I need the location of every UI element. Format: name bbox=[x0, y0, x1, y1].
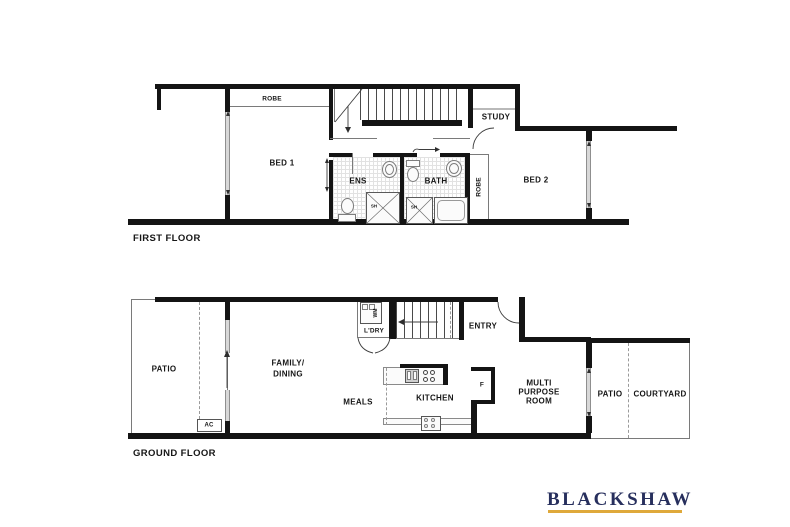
bath-label: BATH bbox=[425, 176, 448, 185]
courtyard-right-line bbox=[689, 343, 690, 439]
multi-label-line1: MULTI bbox=[526, 378, 551, 387]
robe1-line bbox=[230, 106, 329, 107]
bed1-window bbox=[225, 112, 230, 195]
stove-burner-2 bbox=[430, 370, 435, 375]
bath-toilet-bowl-icon bbox=[407, 167, 419, 182]
kitchen-bench-wall-top bbox=[400, 364, 448, 368]
ff-stair-arrowhead bbox=[345, 127, 351, 133]
entry-lower-wall bbox=[519, 337, 591, 342]
fridge-nook-right bbox=[491, 367, 495, 404]
family-slider-line bbox=[227, 353, 228, 390]
bath-shower-label: SH bbox=[411, 204, 417, 209]
robe1-label: ROBE bbox=[262, 95, 282, 102]
wm-label: WM bbox=[374, 309, 380, 318]
bath-slider-arrowhead bbox=[435, 147, 440, 152]
wm-detail-a bbox=[362, 304, 368, 310]
mpr-left-wall bbox=[471, 404, 477, 433]
study-step-wall bbox=[515, 84, 520, 131]
courtyard-label: COURTYARD bbox=[633, 389, 686, 398]
bath-block-wall-b bbox=[373, 153, 417, 157]
courtyard-bottom-line bbox=[591, 438, 690, 439]
robe2-right-line bbox=[488, 154, 489, 219]
robe2-top-line bbox=[470, 154, 488, 155]
stove-burner-4 bbox=[430, 377, 435, 382]
patio-wall-cap-bottom bbox=[225, 421, 230, 434]
blackshaw-logo: BLACKSHAW bbox=[547, 489, 693, 511]
family-window-top bbox=[225, 320, 230, 353]
patio2-label: PATIO bbox=[598, 389, 623, 398]
kitchen-sink-bowl-left bbox=[407, 371, 411, 380]
mpr-window-cap-bottom bbox=[586, 416, 592, 433]
entry-corner-wall bbox=[519, 297, 525, 342]
ac-label: AC bbox=[204, 423, 213, 430]
entry-door-arc bbox=[498, 302, 519, 323]
bath-toilet-tank-icon bbox=[406, 160, 420, 167]
appliance-dot-1 bbox=[424, 418, 428, 422]
meals-label: MEALS bbox=[343, 397, 373, 406]
ldry-bottom-line bbox=[357, 337, 390, 338]
ldry-left-line bbox=[357, 302, 358, 338]
bed1-hall-wall-bottom bbox=[329, 160, 333, 222]
bed1-window-cap-bottom bbox=[225, 195, 230, 225]
kitchen-cupboard-dashed bbox=[386, 368, 387, 425]
hall-line-right bbox=[433, 138, 470, 139]
patio-left-line bbox=[131, 300, 132, 433]
ens-bath-divider bbox=[400, 153, 404, 225]
bed2-window bbox=[586, 141, 591, 208]
gf-top-wall bbox=[155, 297, 498, 302]
kitchen-sink-bowl-right bbox=[413, 371, 417, 380]
bath-shower bbox=[406, 197, 433, 224]
family-label-line1: FAMILY/ bbox=[272, 358, 305, 367]
ldry-stair-wall bbox=[389, 299, 396, 339]
bed1-window-cap-top bbox=[225, 84, 230, 112]
first-floor-title: FIRST FLOOR bbox=[133, 233, 201, 244]
stove-burner-3 bbox=[423, 377, 428, 382]
ff-top-wall-right bbox=[515, 126, 677, 131]
bed1-label: BED 1 bbox=[269, 158, 294, 167]
floor-plan-canvas: ROBE BED 1 ENS BATH ROBE STUDY BED 2 SH … bbox=[0, 0, 790, 527]
ground-floor-title: GROUND FLOOR bbox=[133, 448, 216, 459]
blackshaw-logo-underline bbox=[548, 510, 682, 513]
study-desk-line bbox=[473, 108, 515, 110]
family-window-bottom bbox=[225, 390, 230, 421]
fridge-label: F bbox=[480, 381, 484, 388]
ens-door-leaf bbox=[352, 153, 353, 174]
ldry-door-right-leaf bbox=[375, 338, 390, 353]
stove-burner-1 bbox=[423, 370, 428, 375]
patio-label: PATIO bbox=[152, 364, 177, 373]
mpr-window bbox=[586, 368, 591, 417]
appliance-dot-3 bbox=[424, 424, 428, 428]
appliance-dot-2 bbox=[431, 418, 435, 422]
ens-toilet-bowl-icon bbox=[341, 198, 354, 214]
study-door-arc bbox=[473, 128, 494, 149]
ens-shower-label: SH bbox=[371, 203, 377, 208]
bath-slider-arrow bbox=[413, 149, 435, 152]
entry-label: ENTRY bbox=[469, 321, 497, 330]
study-label: STUDY bbox=[482, 112, 511, 121]
bed2-label: BED 2 bbox=[523, 175, 548, 184]
bed2-window-cap-top bbox=[586, 131, 592, 141]
ff-top-wall bbox=[155, 84, 520, 89]
gf-stair-right-wall bbox=[459, 299, 464, 340]
bed2-window-cap-bottom bbox=[586, 208, 592, 219]
hall-line-left bbox=[330, 138, 377, 139]
gf-stair-cut-line bbox=[450, 302, 451, 338]
appliance-dot-4 bbox=[431, 424, 435, 428]
courtyard-top-wall bbox=[591, 338, 690, 343]
bath-block-wall-a bbox=[329, 153, 352, 157]
bed1-hall-wall-top bbox=[329, 88, 333, 140]
stair-side-line bbox=[334, 89, 335, 122]
mpr-window-cap-top bbox=[586, 342, 592, 368]
bathtub-inner bbox=[437, 200, 465, 221]
ff-top-wall-end-cap bbox=[157, 89, 161, 110]
kitchen-bench-wall-right bbox=[443, 365, 448, 385]
robe2-label: ROBE bbox=[475, 177, 482, 197]
multi-label-line2: PURPOSE bbox=[518, 387, 559, 396]
ens-label: ENS bbox=[349, 176, 366, 185]
ldry-label: L'DRY bbox=[364, 327, 384, 334]
kitchen-label: KITCHEN bbox=[416, 393, 454, 402]
patio-wall-cap-top bbox=[225, 302, 230, 320]
bath-sink-inner bbox=[449, 163, 459, 174]
ens-sink-inner bbox=[385, 164, 394, 175]
patio2-courtyard-divider bbox=[628, 343, 629, 438]
plan-linework bbox=[0, 0, 790, 527]
gf-stair-bottom-line bbox=[396, 338, 460, 339]
first-floor-stairs bbox=[360, 89, 462, 120]
patio-divider-dashed bbox=[199, 302, 200, 419]
ens-toilet-tank-icon bbox=[338, 214, 356, 222]
ldry-door-left-leaf bbox=[358, 338, 373, 353]
ff-stair-diagonal bbox=[335, 89, 362, 122]
understair-wall bbox=[362, 120, 462, 126]
family-label-line2: DINING bbox=[273, 369, 303, 378]
gf-top-left-line bbox=[131, 299, 155, 300]
multi-label-line3: ROOM bbox=[526, 396, 552, 405]
gf-bottom-wall bbox=[128, 433, 591, 439]
